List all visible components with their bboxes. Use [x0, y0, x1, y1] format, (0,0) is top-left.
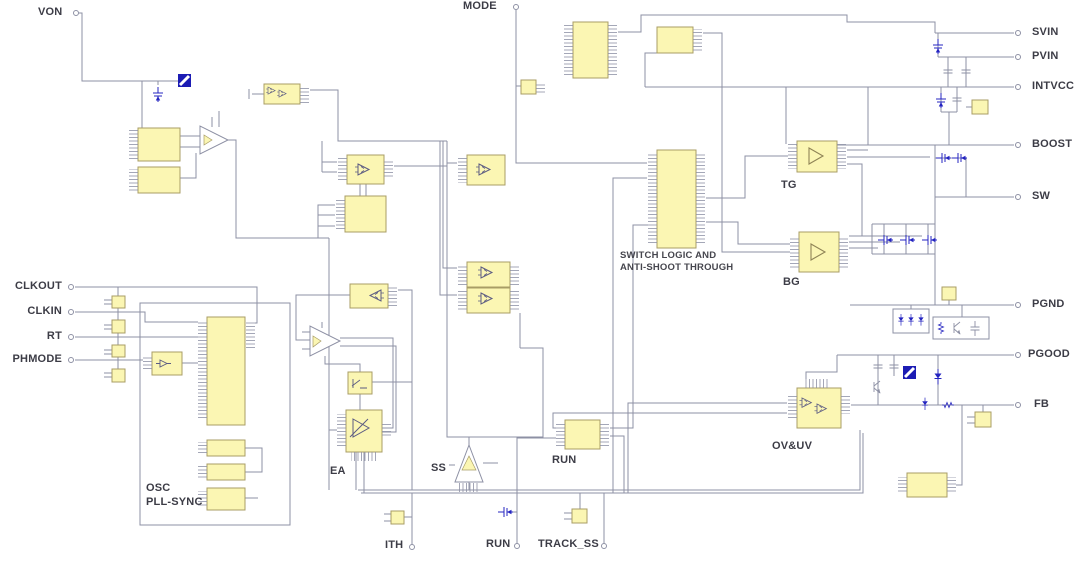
mode-pin — [514, 5, 519, 10]
trackss-clamp-block — [572, 509, 587, 523]
logic-gates-block — [264, 84, 309, 104]
intvcc-reg-block — [972, 100, 988, 114]
block-label-ss: SS — [431, 462, 446, 474]
block-label-switch-logic-1: SWITCH LOGIC AND — [620, 250, 716, 262]
pin-label-mode: MODE — [463, 0, 497, 12]
ea-input-comparator-icon — [302, 322, 340, 356]
clkin-pin — [69, 310, 74, 315]
pin-label-svin: SVIN — [1032, 26, 1058, 38]
run-logic-block — [556, 420, 609, 449]
diode-icon — [908, 314, 913, 326]
divider-block-1 — [198, 440, 245, 456]
pin-label-pvin: PVIN — [1032, 50, 1058, 62]
schematic-canvas — [0, 0, 1080, 564]
comparator-high-block — [458, 262, 519, 287]
divider-block-2 — [198, 464, 245, 480]
pin-label-pgnd: PGND — [1032, 298, 1065, 310]
phmode-buffer-block — [143, 352, 182, 375]
error-amp-block — [337, 410, 391, 461]
resistor-icon — [942, 403, 954, 408]
ith-pin — [410, 545, 415, 550]
reverse-comparator-block — [350, 284, 397, 308]
pgnd-pin — [1016, 303, 1021, 308]
ith-clamp-block — [391, 511, 404, 524]
reference-block — [129, 167, 180, 193]
clkout-pin — [69, 285, 74, 290]
blue-clamp-icon — [903, 366, 916, 379]
pgnd-sense-block — [942, 287, 956, 300]
block-label-run: RUN — [552, 454, 576, 466]
mosfet-icon — [498, 507, 513, 517]
pgood-pin — [1016, 353, 1021, 358]
block-diagram: VON MODE SVIN PVIN INTVCC BOOST SW PGND … — [0, 0, 1080, 564]
rt-pin — [69, 335, 74, 340]
diode-icon — [922, 398, 928, 410]
sense-block — [336, 196, 386, 232]
block-label-ea: EA — [330, 465, 346, 477]
svin-pin — [1016, 31, 1021, 36]
pvin-pin — [1016, 55, 1021, 60]
pin-label-sw: SW — [1032, 190, 1050, 202]
block-label-switch-logic-2: ANTI-SHOOT THROUGH — [620, 262, 733, 274]
function-blocks — [112, 22, 991, 524]
diode-icon — [918, 314, 923, 326]
von-pin — [74, 11, 79, 16]
pin-label-ith: ITH — [385, 539, 403, 551]
block-label-osc: OSC — [146, 482, 170, 494]
blue-clamp-icon — [178, 74, 191, 87]
current-comparator-block — [338, 155, 393, 184]
mode-select-block — [521, 80, 545, 94]
run-pin — [515, 544, 520, 549]
diode-icon — [935, 369, 942, 385]
pin-label-von: VON — [38, 6, 62, 18]
pin-label-run: RUN — [486, 538, 510, 550]
rt-filter-box — [112, 345, 125, 357]
intvcc-pin — [1016, 85, 1021, 90]
tg-driver-block — [788, 141, 846, 172]
pin-label-fb: FB — [1034, 398, 1049, 410]
block-label-tg: TG — [781, 179, 797, 191]
fb-divider-block — [975, 412, 991, 427]
block-label-pll-sync: PLL-SYNC — [146, 496, 203, 508]
fb-pin — [1016, 403, 1021, 408]
track-ss-pin — [602, 544, 607, 549]
pin-label-pgood: PGOOD — [1028, 348, 1070, 360]
ovuv-block — [788, 379, 850, 428]
control-logic-block — [564, 22, 617, 78]
state-machine-block — [657, 27, 702, 53]
block-label-ovuv: OV&UV — [772, 440, 812, 452]
pin-label-clkin: CLKIN — [10, 305, 62, 317]
ss-current-source-icon — [455, 445, 483, 492]
pin-label-phmode: PHMODE — [8, 353, 62, 365]
block-label-bg: BG — [783, 276, 800, 288]
switch-logic-block — [648, 150, 705, 248]
pin-label-clkout: CLKOUT — [10, 280, 62, 292]
clkout-filter-box — [112, 296, 125, 308]
bg-driver-block — [790, 232, 848, 272]
transistor-icon — [874, 381, 881, 394]
pin-label-track-ss: TRACK_SS — [538, 538, 599, 550]
uv-sense-block — [129, 128, 180, 161]
resistor-icon — [939, 322, 944, 334]
sw-pin — [1016, 195, 1021, 200]
clkin-filter-box — [112, 320, 125, 333]
diode-icon — [898, 314, 903, 326]
capacitor-icon — [971, 321, 980, 336]
osc-core-block — [198, 317, 255, 425]
pin-label-boost: BOOST — [1032, 138, 1072, 150]
phmode-filter-box — [112, 369, 125, 382]
fb-reference-block — [898, 473, 956, 497]
mosfet-icon — [153, 87, 163, 102]
pwm-comparator-block — [458, 155, 505, 185]
phmode-pin — [69, 358, 74, 363]
transistor-icon — [954, 322, 961, 335]
comparator-low-block — [458, 288, 519, 313]
pin-label-intvcc: INTVCC — [1032, 80, 1074, 92]
boost-pin — [1016, 143, 1021, 148]
pin-label-rt: RT — [10, 330, 62, 342]
von-comparator-icon — [200, 126, 228, 154]
ea-clamp-block — [348, 372, 372, 394]
divider-block-3 — [198, 488, 245, 510]
